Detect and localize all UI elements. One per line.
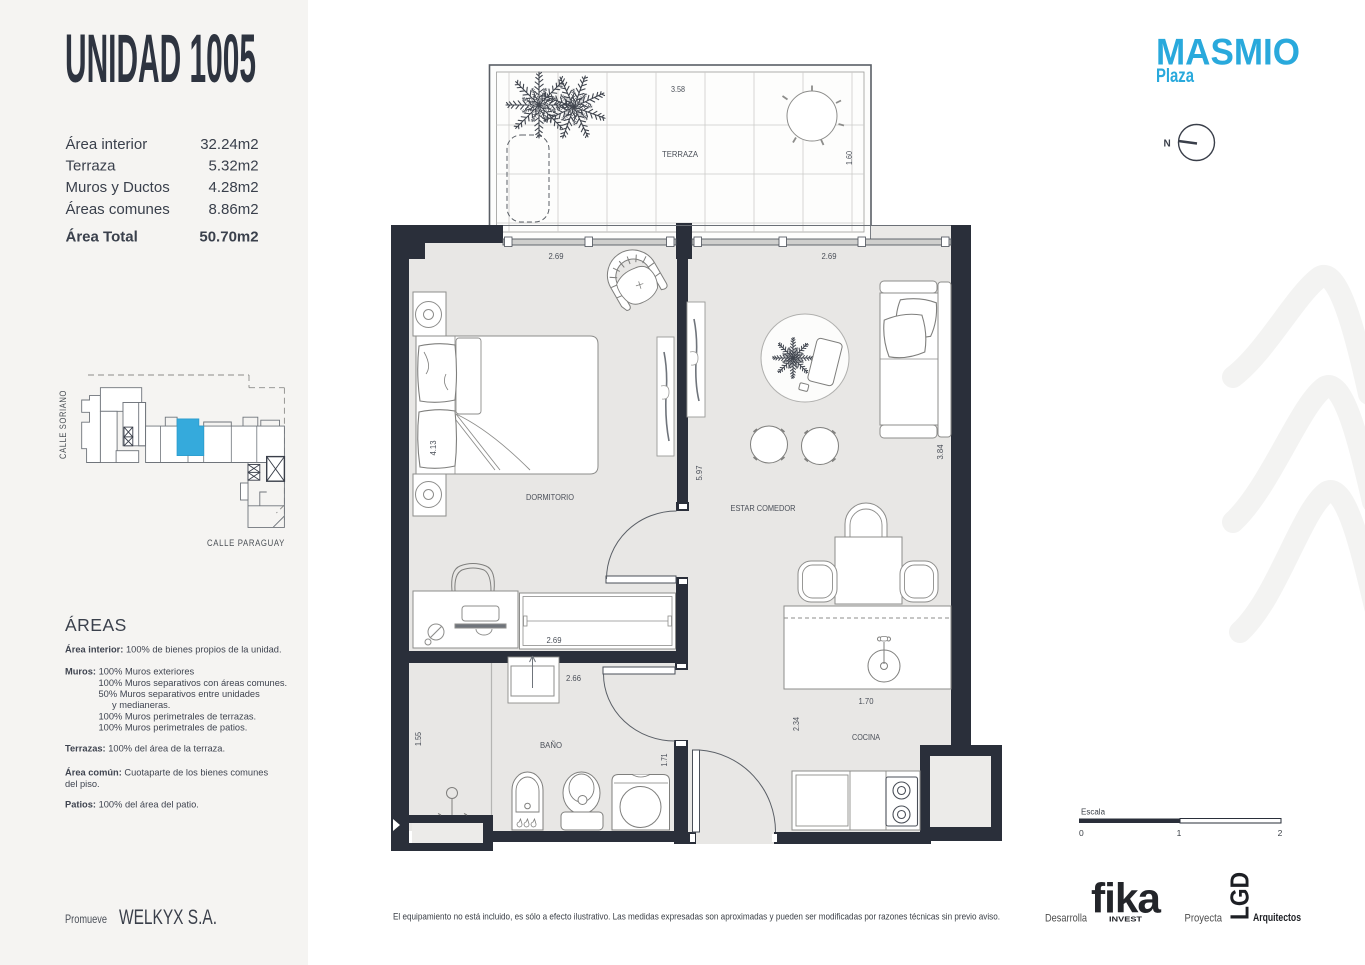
svg-text:Muros y Ductos: Muros y Ductos <box>66 179 170 196</box>
svg-text:4.28m2: 4.28m2 <box>209 179 259 196</box>
svg-text:Terraza: Terraza <box>66 158 117 175</box>
svg-text:0: 0 <box>1079 828 1084 838</box>
svg-text:50% Muros separativos entre u: 50% Muros separativos entre unidades <box>99 689 261 699</box>
svg-text:El equipamiento no está inclui: El equipamiento no está incluido, es sól… <box>393 912 1000 922</box>
svg-text:WELKYX S.A.: WELKYX S.A. <box>119 906 217 929</box>
svg-text:32.24m2: 32.24m2 <box>200 136 258 153</box>
svg-text:Área Total: Área Total <box>66 229 138 246</box>
svg-text:y medianeras.: y medianeras. <box>112 700 170 710</box>
svg-text:Áreas comunes: Áreas comunes <box>66 201 170 218</box>
svg-text:4.13: 4.13 <box>429 440 438 456</box>
svg-text:5.32m2: 5.32m2 <box>209 158 259 175</box>
svg-text:3.58: 3.58 <box>671 85 685 94</box>
svg-text:Muros: 100% Muros exteriores: Muros: 100% Muros exteriores <box>65 667 195 677</box>
svg-text:CALLE PARAGUAY: CALLE PARAGUAY <box>207 538 285 549</box>
svg-text:1.55: 1.55 <box>414 732 423 746</box>
svg-text:2: 2 <box>1278 828 1283 838</box>
svg-text:N: N <box>1164 139 1171 150</box>
svg-text:2.66: 2.66 <box>566 674 582 683</box>
svg-text:1.71: 1.71 <box>660 753 669 766</box>
svg-text:1: 1 <box>1177 828 1182 838</box>
svg-text:Área interior: Área interior <box>66 136 148 153</box>
svg-text:Promueve: Promueve <box>65 912 107 926</box>
svg-text:Patios: 100% del área del pati: Patios: 100% del área del patio. <box>65 800 199 810</box>
svg-text:UNIDAD 1005: UNIDAD 1005 <box>65 20 256 97</box>
svg-text:100% Muros separativos con áre: 100% Muros separativos con áreas comunes… <box>99 678 288 688</box>
svg-text:CALLE SORIANO: CALLE SORIANO <box>58 390 69 459</box>
svg-text:ÁREAS: ÁREAS <box>65 615 127 635</box>
svg-text:1.60: 1.60 <box>845 151 854 165</box>
svg-text:del piso.: del piso. <box>65 779 100 789</box>
svg-text:COCINA: COCINA <box>852 732 880 742</box>
svg-text:2.69: 2.69 <box>549 252 565 261</box>
svg-text:8.86m2: 8.86m2 <box>209 201 259 218</box>
svg-text:Proyecta: Proyecta <box>1185 913 1223 925</box>
svg-text:LGD: LGD <box>1225 872 1255 920</box>
svg-text:Terrazas: 100% del área de la: Terrazas: 100% del área de la terraza. <box>65 744 225 754</box>
svg-text:Área interior: 100% de bienes: Área interior: 100% de bienes propios de… <box>65 644 282 654</box>
svg-text:1.70: 1.70 <box>859 697 875 706</box>
svg-text:Escala: Escala <box>1081 808 1106 817</box>
svg-text:2.69: 2.69 <box>547 636 563 645</box>
svg-text:Área común: Cuotaparte de los: Área común: Cuotaparte de los bienes com… <box>65 767 268 777</box>
svg-text:INVEST: INVEST <box>1109 915 1143 924</box>
svg-text:100% Muros perimetrales de ter: 100% Muros perimetrales de terrazas. <box>99 711 257 721</box>
svg-text:DORMITORIO: DORMITORIO <box>526 492 574 502</box>
svg-text:100% Muros perimetrales de pat: 100% Muros perimetrales de patios. <box>99 723 248 733</box>
svg-text:Plaza: Plaza <box>1156 66 1194 87</box>
svg-text:5.97: 5.97 <box>695 465 704 481</box>
svg-text:Desarrolla: Desarrolla <box>1045 913 1088 925</box>
svg-text:50.70m2: 50.70m2 <box>199 229 258 246</box>
svg-text:2.34: 2.34 <box>792 717 801 731</box>
svg-text:Arquitectos: Arquitectos <box>1253 912 1301 924</box>
svg-text:ESTAR COMEDOR: ESTAR COMEDOR <box>731 503 796 513</box>
svg-text:BAÑO: BAÑO <box>540 740 562 750</box>
svg-text:2.69: 2.69 <box>822 252 838 261</box>
svg-text:3.84: 3.84 <box>936 444 945 460</box>
svg-text:TERRAZA: TERRAZA <box>662 149 698 159</box>
